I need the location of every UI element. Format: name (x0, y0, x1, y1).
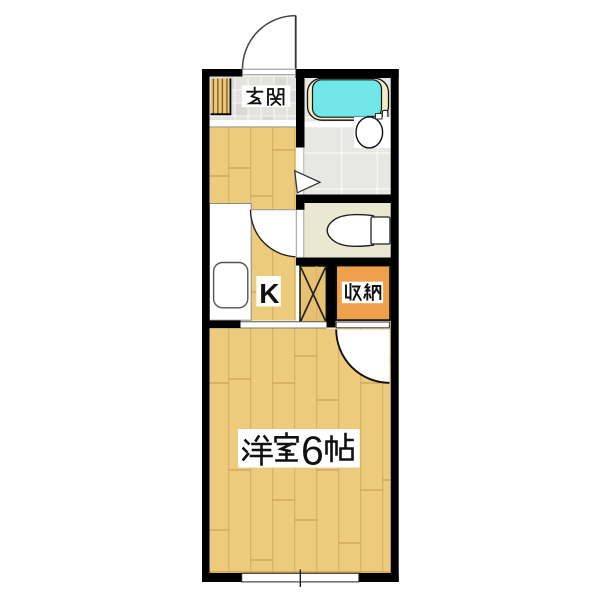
svg-text:K: K (259, 278, 279, 309)
svg-text:6: 6 (301, 428, 324, 474)
